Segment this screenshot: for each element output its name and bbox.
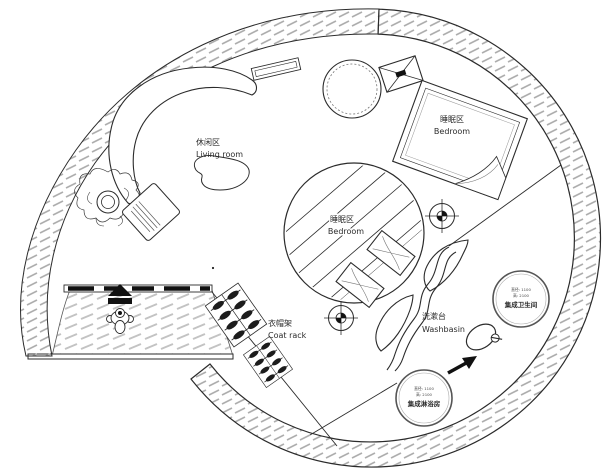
round-table xyxy=(323,60,381,118)
floor-plan-drawing: 休闲区 Living room 睡眠区 Bedroom 睡眠区 Bedroom xyxy=(0,0,611,473)
bedroom-center-label-en: Bedroom xyxy=(328,227,364,236)
coat-rack-label-zh: 衣帽架 xyxy=(268,318,292,328)
living-room-label-zh: 休闲区 xyxy=(196,137,220,147)
shower-pod-name: 集成淋浴房 xyxy=(407,399,441,408)
coat-rack-label-en: Coat rack xyxy=(268,331,307,340)
bedroom-right-label-zh: 睡眠区 xyxy=(440,115,464,124)
bathroom-pod: 直径: 1100 高: 2100 集成卫生间 xyxy=(493,271,549,327)
deck-bottom-wall xyxy=(28,354,233,359)
bathroom-pod-name: 集成卫生间 xyxy=(504,300,538,309)
living-room-label-en: Living room xyxy=(196,150,243,159)
floor-plan-canvas: 休闲区 Living room 睡眠区 Bedroom 睡眠区 Bedroom xyxy=(0,0,611,473)
bathroom-pod-spec2: 高: 2100 xyxy=(513,293,530,298)
shower-pod: 直径: 1100 高: 2100 集成淋浴房 xyxy=(396,370,452,426)
shower-pod-spec2: 高: 2100 xyxy=(416,392,433,397)
shower-pod-spec1: 直径: 1100 xyxy=(414,386,434,391)
bedroom-right-label-en: Bedroom xyxy=(434,127,470,136)
washbasin-label-zh: 洗漱台 xyxy=(422,311,446,321)
deck-area xyxy=(52,290,233,356)
bathroom-pod-spec1: 直径: 1100 xyxy=(511,287,531,292)
washbasin-label-en: Washbasin xyxy=(422,325,465,334)
floor-dot xyxy=(212,267,214,269)
bedroom-center-label-zh: 睡眠区 xyxy=(330,215,354,224)
